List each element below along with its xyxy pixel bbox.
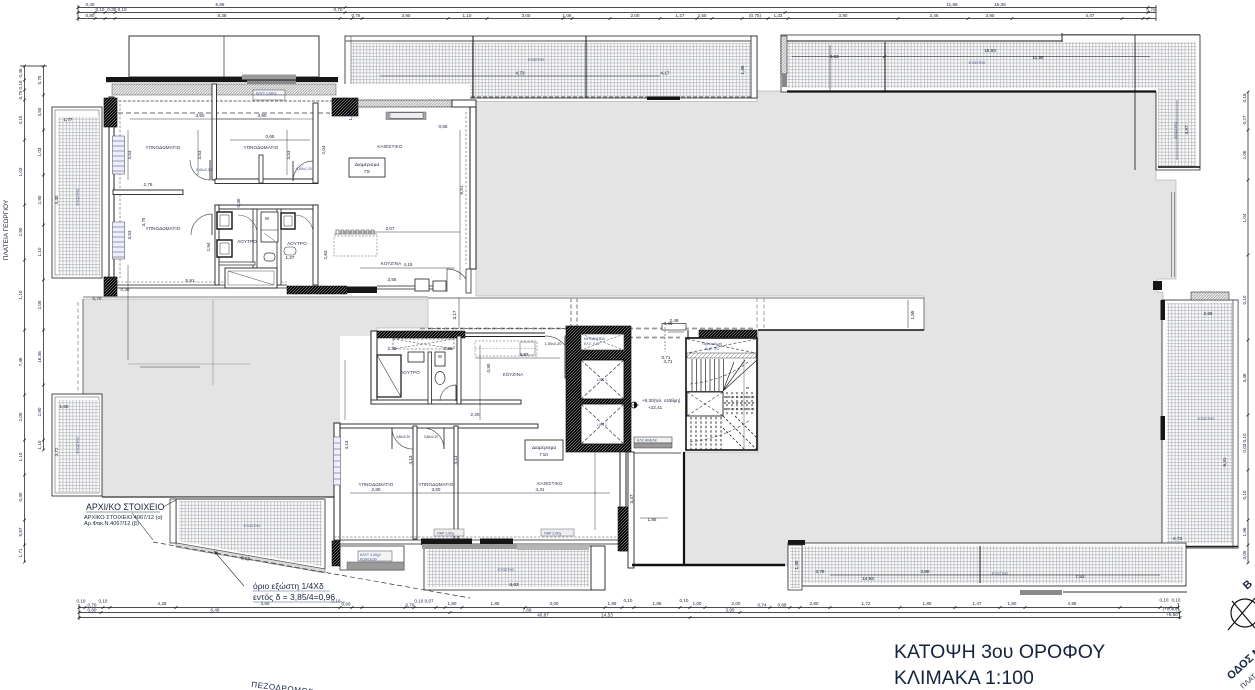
svg-text:ΠΑΡ 1.60χ: ΠΑΡ 1.60χ xyxy=(437,532,454,536)
svg-text:0,73: 0,73 xyxy=(1173,536,1182,541)
svg-text:1,96: 1,96 xyxy=(1242,527,1247,536)
svg-text:ΚΑΤΟΨΗ 3ου ΟΡΟΦΟΥ: ΚΑΤΟΨΗ 3ου ΟΡΟΦΟΥ xyxy=(894,641,1105,663)
svg-text:3,63: 3,63 xyxy=(830,54,839,59)
svg-text:Διαμέρισμα: Διαμέρισμα xyxy=(532,444,556,451)
svg-text:0,10: 0,10 xyxy=(624,598,633,603)
svg-text:3,46: 3,46 xyxy=(930,13,939,18)
svg-text:0,75: 0,75 xyxy=(37,75,42,84)
svg-text:0,10 0,07: 0,10 0,07 xyxy=(414,599,434,604)
svg-text:ΠΑΡ 2.00χ: ΠΑΡ 2.00χ xyxy=(544,532,561,536)
svg-text:0,90: 0,90 xyxy=(486,363,491,372)
svg-text:1,27: 1,27 xyxy=(676,13,685,18)
svg-text:2,80: 2,80 xyxy=(810,601,819,606)
svg-text:ΕΛΞ. ΚΛΤ: ΕΛΞ. ΚΛΤ xyxy=(584,342,601,346)
svg-text:ΥΠΝΟΔΩΜΑΤΙΟ: ΥΠΝΟΔΩΜΑΤΙΟ xyxy=(146,226,181,231)
svg-text:3: 3 xyxy=(745,386,750,389)
svg-text:6,51: 6,51 xyxy=(459,185,464,194)
svg-text:2,94: 2,94 xyxy=(206,242,211,251)
svg-text:2,20: 2,20 xyxy=(471,412,480,417)
svg-text:16,46: 16,46 xyxy=(37,351,42,363)
svg-text:W: W xyxy=(438,354,443,359)
svg-text:0,80: 0,80 xyxy=(86,13,95,18)
svg-text:0,10: 0,10 xyxy=(1160,598,1169,603)
svg-text:3,90: 3,90 xyxy=(258,113,267,118)
svg-text:ΥΠΝΟΔΩΜΑΤΙΟ: ΥΠΝΟΔΩΜΑΤΙΟ xyxy=(244,145,279,150)
svg-text:W: W xyxy=(265,216,270,221)
svg-text:ΕΞΩΣΤΗΣ: ΕΞΩΣΤΗΣ xyxy=(1174,121,1178,138)
svg-text:1,27: 1,27 xyxy=(286,255,295,260)
svg-text:3,53: 3,53 xyxy=(286,150,291,159)
svg-text:4,97: 4,97 xyxy=(1184,125,1189,134)
svg-text:1,77: 1,77 xyxy=(64,117,73,122)
svg-text:0,70: 0,70 xyxy=(93,296,102,301)
svg-text:3,90: 3,90 xyxy=(839,13,848,18)
svg-text:2,90: 2,90 xyxy=(37,195,42,204)
svg-text:2,30: 2,30 xyxy=(388,346,397,351)
svg-text:0,10: 0,10 xyxy=(1242,295,1247,304)
svg-text:0,80x2,20: 0,80x2,20 xyxy=(396,435,410,439)
svg-text:3,56: 3,56 xyxy=(388,277,397,282)
svg-text:0,70: 0,70 xyxy=(1147,8,1156,13)
svg-text:4,13: 4,13 xyxy=(408,455,413,464)
svg-text:0,76: 0,76 xyxy=(352,13,361,18)
svg-text:1,47: 1,47 xyxy=(973,601,982,606)
svg-text:0,18: 0,18 xyxy=(1242,93,1247,102)
svg-text:0,46: 0,46 xyxy=(18,68,23,77)
svg-text:3,46: 3,46 xyxy=(664,321,673,326)
svg-text:ΚΛΣ ΑΝΕΛΚ: ΚΛΣ ΑΝΕΛΚ xyxy=(637,439,658,443)
svg-text:3,72: 3,72 xyxy=(54,447,59,456)
svg-text:1,33: 1,33 xyxy=(774,13,783,18)
svg-text:0,30: 0,30 xyxy=(18,492,23,501)
svg-text:1,95: 1,95 xyxy=(608,601,617,606)
svg-text:Ταμπλαδωτή: Ταμπλαδωτή xyxy=(702,342,722,346)
svg-text:1,95: 1,95 xyxy=(910,310,915,319)
svg-text:ΚΟΥΖΙΝΑ: ΚΟΥΖΙΝΑ xyxy=(503,372,524,377)
svg-text:ΕΞΩΣΤΗΣ: ΕΞΩΣΤΗΣ xyxy=(498,568,515,572)
svg-text:0,10: 0,10 xyxy=(680,598,689,603)
svg-text:2,66: 2,66 xyxy=(1204,311,1213,316)
svg-text:(+0,40): (+0,40) xyxy=(1163,607,1178,612)
svg-text:4,50: 4,50 xyxy=(37,107,42,116)
svg-text:1,00: 1,00 xyxy=(693,601,702,606)
svg-text:0,70: 0,70 xyxy=(334,7,343,12)
svg-text:ΚΟΙΝ 8.00: ΚΟΙΝ 8.00 xyxy=(360,558,377,562)
svg-text:3,17: 3,17 xyxy=(452,310,457,319)
svg-text:7,68: 7,68 xyxy=(523,607,532,612)
svg-text:3,00: 3,00 xyxy=(550,601,559,606)
svg-text:2,00: 2,00 xyxy=(732,601,741,606)
svg-text:0,30: 0,30 xyxy=(121,287,130,292)
svg-text:0,27: 0,27 xyxy=(1242,115,1247,124)
svg-text:Γ8: Γ8 xyxy=(364,169,370,175)
svg-text:0,79: 0,79 xyxy=(406,602,415,607)
svg-text:(0,75): (0,75) xyxy=(749,13,761,18)
svg-text:1,10: 1,10 xyxy=(18,452,23,461)
svg-text:3,00: 3,00 xyxy=(522,13,531,18)
svg-text:4,15: 4,15 xyxy=(18,115,23,124)
svg-text:1,10: 1,10 xyxy=(463,13,472,18)
svg-text:1,72: 1,72 xyxy=(862,601,871,606)
svg-text:3,46: 3,46 xyxy=(1242,373,1247,382)
svg-text:40,87: 40,87 xyxy=(537,612,549,617)
svg-text:Αρ.Φακ.Ν.4067/12 (β): Αρ.Φακ.Ν.4067/12 (β) xyxy=(84,521,139,527)
svg-text:εντός δ = 3,85/4=0,96: εντός δ = 3,85/4=0,96 xyxy=(253,592,335,602)
svg-text:1,35: 1,35 xyxy=(740,65,745,74)
svg-text:3,53: 3,53 xyxy=(127,150,132,159)
svg-text:3,50: 3,50 xyxy=(196,113,205,118)
svg-text:1,00x2,20: 1,00x2,20 xyxy=(545,342,562,346)
svg-text:0,74: 0,74 xyxy=(758,602,767,607)
svg-text:4,73: 4,73 xyxy=(516,71,525,76)
svg-text:0,10: 0,10 xyxy=(1172,598,1181,603)
svg-text:4,40: 4,40 xyxy=(54,195,59,204)
svg-text:8,48: 8,48 xyxy=(211,607,220,612)
svg-text:Εμβ. ΠΩ: Εμβ. ΠΩ xyxy=(705,347,719,351)
svg-text:1,80: 1,80 xyxy=(1008,601,1017,606)
svg-text:0,75: 0,75 xyxy=(18,90,23,99)
svg-text:4,15: 4,15 xyxy=(404,262,413,267)
svg-text:0,88: 0,88 xyxy=(778,602,787,607)
svg-text:4,13: 4,13 xyxy=(344,440,349,449)
svg-text:ΕΞΩΣΤΗΣ: ΕΞΩΣΤΗΣ xyxy=(244,524,261,528)
svg-text:11,88: 11,88 xyxy=(946,2,958,7)
svg-text:0,80x2,20: 0,80x2,20 xyxy=(196,168,212,172)
svg-text:ΚΛΥΤ 1.00x1: ΚΛΥΤ 1.00x1 xyxy=(256,91,277,95)
svg-text:0,65: 0,65 xyxy=(266,134,275,139)
svg-text:1,85: 1,85 xyxy=(653,601,662,606)
svg-text:ΕΞΩΣΤΗΣ: ΕΞΩΣΤΗΣ xyxy=(76,188,80,205)
svg-text:2,90: 2,90 xyxy=(18,227,23,236)
svg-text:5,91: 5,91 xyxy=(186,278,195,283)
svg-text:8,38: 8,38 xyxy=(218,13,227,18)
svg-text:1,06: 1,06 xyxy=(563,13,572,18)
svg-text:3,87: 3,87 xyxy=(520,352,529,357)
svg-text:14,93: 14,93 xyxy=(862,576,874,581)
svg-text:3,05: 3,05 xyxy=(1242,550,1247,559)
svg-text:1,80: 1,80 xyxy=(448,601,457,606)
svg-text:ΕΞΩΣΤΗΣ: ΕΞΩΣΤΗΣ xyxy=(1198,417,1215,421)
svg-text:2,06: 2,06 xyxy=(1242,150,1247,159)
svg-text:3,79: 3,79 xyxy=(816,569,825,574)
svg-text:1,85: 1,85 xyxy=(648,517,657,522)
svg-text:4,13: 4,13 xyxy=(453,455,458,464)
svg-text:+5,50: +5,50 xyxy=(1166,612,1178,617)
svg-text:Διαμέρισμα: Διαμέρισμα xyxy=(355,161,379,168)
svg-text:0,88: 0,88 xyxy=(444,346,453,351)
svg-text:3,53: 3,53 xyxy=(127,230,132,239)
svg-text:3,47: 3,47 xyxy=(629,494,634,503)
svg-text:ΚΛΥΤ 4.00χ2: ΚΛΥΤ 4.00χ2 xyxy=(360,553,381,557)
svg-text:4,98: 4,98 xyxy=(1068,601,1077,606)
svg-text:2,80: 2,80 xyxy=(372,487,381,492)
svg-text:1,10: 1,10 xyxy=(18,290,23,299)
svg-text:ΚΑΘΙΣΤΙΚΟ: ΚΑΘΙΣΤΙΚΟ xyxy=(377,144,403,149)
svg-text:3,90: 3,90 xyxy=(986,13,995,18)
svg-text:0,30: 0,30 xyxy=(236,198,241,207)
svg-text:1,80: 1,80 xyxy=(923,601,932,606)
svg-text:ΚΟΥΖΙΝΑ: ΚΟΥΖΙΝΑ xyxy=(381,261,402,266)
svg-text:ΕΞΩΣΤΗΣ: ΕΞΩΣΤΗΣ xyxy=(528,58,545,62)
svg-text:0,03 0,10: 0,03 0,10 xyxy=(1242,433,1247,453)
svg-text:2,63: 2,63 xyxy=(323,250,328,259)
svg-text:3,80: 3,80 xyxy=(921,569,930,574)
svg-text:ΕΞΩΣΤΗΣ: ΕΞΩΣΤΗΣ xyxy=(969,61,986,65)
svg-text:ΜΗΧΑΝΗΜΑ: ΜΗΧΑΝΗΜΑ xyxy=(584,337,606,341)
svg-text:ΕΞΩΣΤΗΣ: ΕΞΩΣΤΗΣ xyxy=(992,572,1009,576)
svg-text:Γ10: Γ10 xyxy=(540,452,548,458)
svg-text:15,35: 15,35 xyxy=(994,2,1006,7)
svg-text:όριο εξώστη 1/4Χδ: όριο εξώστη 1/4Χδ xyxy=(253,581,324,591)
svg-text:ΛΟΥΤΡΟ: ΛΟΥΤΡΟ xyxy=(400,370,420,375)
svg-text:0,10: 0,10 xyxy=(18,80,23,89)
svg-text:1,10: 1,10 xyxy=(37,247,42,256)
svg-text:0,71: 0,71 xyxy=(662,355,671,360)
svg-text:14,53: 14,53 xyxy=(601,612,613,617)
svg-text:1,85: 1,85 xyxy=(491,601,500,606)
svg-text:7,46: 7,46 xyxy=(18,357,23,366)
svg-text:4,31: 4,31 xyxy=(536,487,545,492)
svg-text:0,80x2,20: 0,80x2,20 xyxy=(424,435,438,439)
svg-text:2,00: 2,00 xyxy=(631,13,640,18)
svg-text:5,87: 5,87 xyxy=(18,527,23,536)
svg-text:LIFT 1: LIFT 1 xyxy=(597,378,607,382)
svg-text:ΥΠΝΟΔΩΜΑΤΙΟ: ΥΠΝΟΔΩΜΑΤΙΟ xyxy=(146,145,181,150)
svg-text:3,53: 3,53 xyxy=(197,150,202,159)
svg-text:ΛΟΥΤΡΟ: ΛΟΥΤΡΟ xyxy=(287,241,307,246)
svg-text:2,07: 2,07 xyxy=(386,226,395,231)
svg-text:0,10: 0,10 xyxy=(99,599,108,604)
svg-text:0,40: 0,40 xyxy=(86,2,95,7)
svg-text:11,88: 11,88 xyxy=(1032,55,1044,60)
svg-text:ΑΡΧΙ/ΚΟ ΣΤΟΙΧΕΙΟ: ΑΡΧΙ/ΚΟ ΣΤΟΙΧΕΙΟ xyxy=(86,502,164,512)
svg-text:15,93: 15,93 xyxy=(984,48,996,53)
svg-text:1,03: 1,03 xyxy=(37,147,42,156)
svg-text:3,75: 3,75 xyxy=(141,217,146,226)
svg-text:3,90: 3,90 xyxy=(402,13,411,18)
svg-text:6,63: 6,63 xyxy=(510,582,519,587)
svg-text:2,05: 2,05 xyxy=(18,412,23,421)
svg-text:ΚΑΘΙΣΤΙΚΟ: ΚΑΘΙΣΤΙΚΟ xyxy=(537,481,563,486)
svg-text:2,50: 2,50 xyxy=(698,13,707,18)
svg-text:1,40: 1,40 xyxy=(794,560,799,569)
svg-text:0,10: 0,10 xyxy=(77,599,86,604)
svg-text:1,71: 1,71 xyxy=(18,548,23,557)
svg-text:2,90: 2,90 xyxy=(37,407,42,416)
svg-text:6,31: 6,31 xyxy=(1222,457,1227,466)
svg-text:2,04: 2,04 xyxy=(321,145,326,154)
svg-text:4,47: 4,47 xyxy=(1086,13,1095,18)
svg-text:3,60: 3,60 xyxy=(432,487,441,492)
svg-text:ΚΛΙΜΑΚΑ 1:100: ΚΛΙΜΑΚΑ 1:100 xyxy=(894,667,1034,689)
svg-text:1,44: 1,44 xyxy=(348,111,353,120)
svg-text:1,03: 1,03 xyxy=(18,167,23,176)
svg-text:0,10: 0,10 xyxy=(1242,490,1247,499)
svg-text:LIFT 2: LIFT 2 xyxy=(597,423,607,427)
svg-text:0,80: 0,80 xyxy=(88,607,97,612)
svg-text:ΠΛΑΤΕΙΑ ΓΕΩΡΓΙΟΥ: ΠΛΑΤΕΙΑ ΓΕΩΡΓΙΟΥ xyxy=(3,199,10,260)
svg-text:1,04: 1,04 xyxy=(1242,213,1247,222)
svg-text:2,76: 2,76 xyxy=(144,182,153,187)
svg-text:+9,30(τελ. στάθμη): +9,30(τελ. στάθμη) xyxy=(642,397,681,403)
svg-text:1,10: 1,10 xyxy=(37,440,42,449)
svg-text:1,60: 1,60 xyxy=(60,404,69,409)
svg-text:0,80x2,20: 0,80x2,20 xyxy=(296,167,312,171)
svg-text:ΕΞΩΣΤΗΣ: ΕΞΩΣΤΗΣ xyxy=(76,436,80,453)
svg-text:ΛΟΥΤΡΟ: ΛΟΥΤΡΟ xyxy=(237,239,257,244)
svg-text:4,17: 4,17 xyxy=(661,71,670,76)
svg-text:3,95: 3,95 xyxy=(726,607,735,612)
svg-text:4,28: 4,28 xyxy=(158,601,167,606)
svg-text:0,10: 0,10 xyxy=(96,7,105,12)
svg-text:2,05: 2,05 xyxy=(37,300,42,309)
svg-text:0,30 0,10: 0,30 0,10 xyxy=(107,7,127,12)
svg-text:+22,41: +22,41 xyxy=(648,405,663,410)
svg-text:6,86: 6,86 xyxy=(216,2,225,7)
svg-text:0,65: 0,65 xyxy=(439,124,448,129)
